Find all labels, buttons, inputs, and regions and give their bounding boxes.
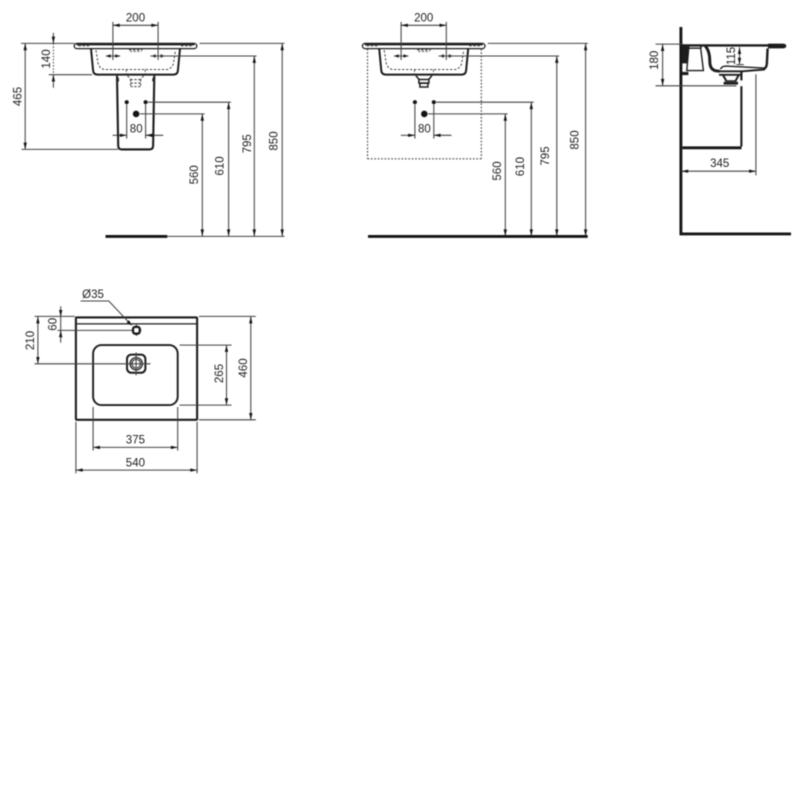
- svg-text:610: 610: [515, 157, 527, 176]
- svg-text:795: 795: [242, 134, 254, 153]
- svg-text:465: 465: [13, 87, 25, 106]
- svg-text:560: 560: [492, 161, 504, 180]
- svg-text:375: 375: [126, 435, 145, 447]
- svg-text:850: 850: [569, 130, 581, 149]
- svg-text:180: 180: [649, 51, 661, 70]
- svg-text:610: 610: [215, 156, 227, 175]
- svg-text:Ø35: Ø35: [82, 289, 104, 301]
- svg-text:210: 210: [25, 331, 37, 350]
- svg-text:115: 115: [726, 47, 738, 65]
- svg-text:460: 460: [238, 358, 250, 377]
- svg-text:140: 140: [41, 49, 53, 68]
- svg-text:540: 540: [126, 457, 145, 469]
- svg-text:795: 795: [540, 146, 552, 165]
- svg-text:265: 265: [214, 364, 226, 383]
- svg-text:345: 345: [710, 158, 729, 170]
- svg-text:560: 560: [189, 165, 201, 184]
- svg-text:60: 60: [48, 318, 60, 331]
- svg-text:850: 850: [269, 131, 281, 150]
